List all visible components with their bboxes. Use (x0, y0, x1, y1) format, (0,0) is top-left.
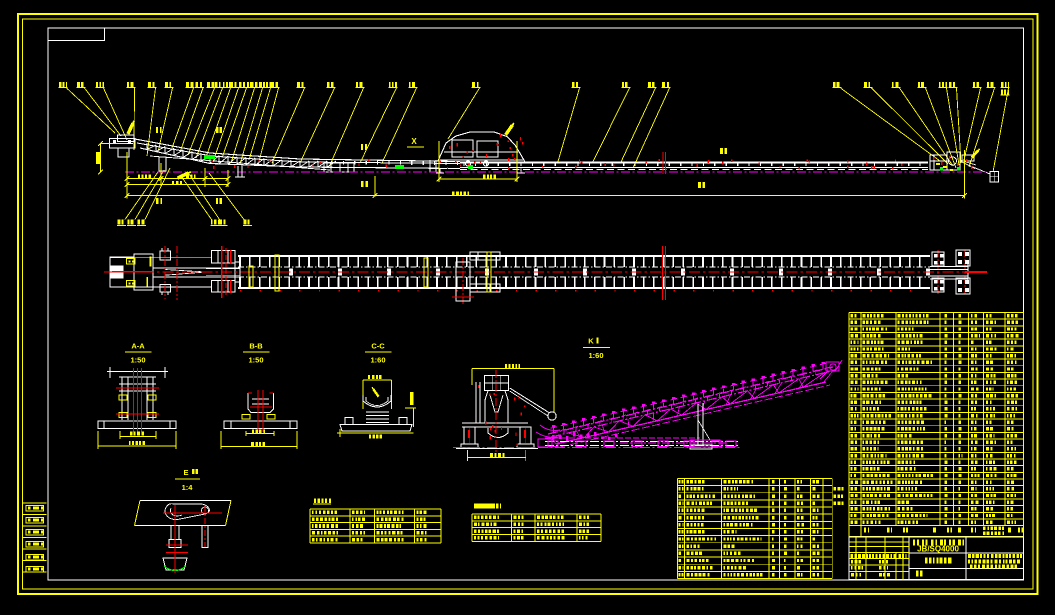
svg-text:1:50: 1:50 (248, 356, 263, 365)
svg-text:K: K (588, 337, 594, 346)
svg-text:A-A: A-A (131, 342, 145, 351)
svg-text:JB/SQ4000: JB/SQ4000 (917, 545, 959, 554)
svg-text:1:60: 1:60 (588, 351, 603, 360)
svg-text:1:60: 1:60 (370, 356, 385, 365)
svg-text:C-C: C-C (371, 342, 385, 351)
svg-text:1:4: 1:4 (182, 483, 194, 492)
svg-text:E: E (183, 468, 188, 477)
svg-text:B-B: B-B (249, 342, 263, 351)
svg-text:1:50: 1:50 (130, 356, 145, 365)
svg-text:X: X (411, 137, 417, 146)
